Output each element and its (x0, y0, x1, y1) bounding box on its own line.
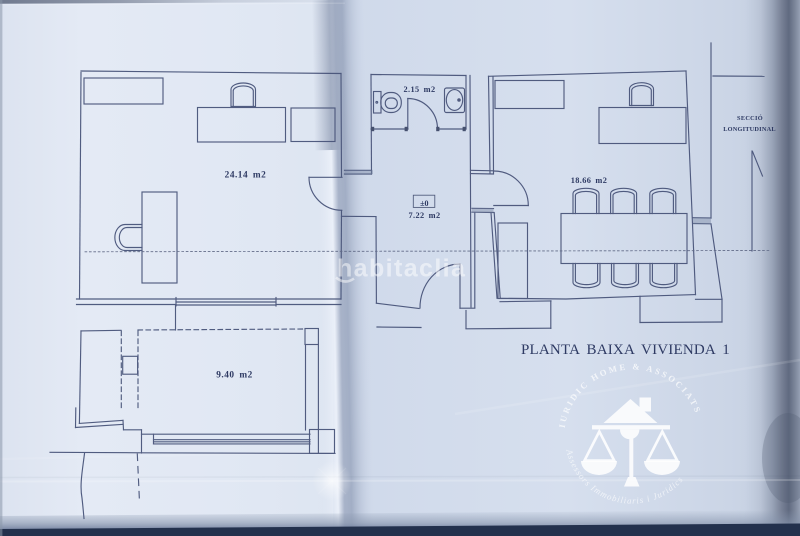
svg-text:2.15 m2: 2.15 m2 (403, 85, 435, 94)
svg-text:7.22 m2: 7.22 m2 (408, 211, 440, 220)
svg-text:LONGITUDINAL: LONGITUDINAL (723, 126, 775, 133)
svg-text:24.14 m2: 24.14 m2 (225, 171, 267, 181)
svg-text:9.40 m2: 9.40 m2 (216, 371, 253, 381)
svg-text:±0: ±0 (420, 199, 428, 208)
svg-text:habitaclia: habitaclia (337, 255, 466, 283)
svg-text:SECCIÓ: SECCIÓ (737, 114, 763, 122)
svg-text:PLANTA BAIXA VIVIENDA 1: PLANTA BAIXA VIVIENDA 1 (521, 342, 730, 358)
svg-text:18.66 m2: 18.66 m2 (571, 176, 608, 185)
